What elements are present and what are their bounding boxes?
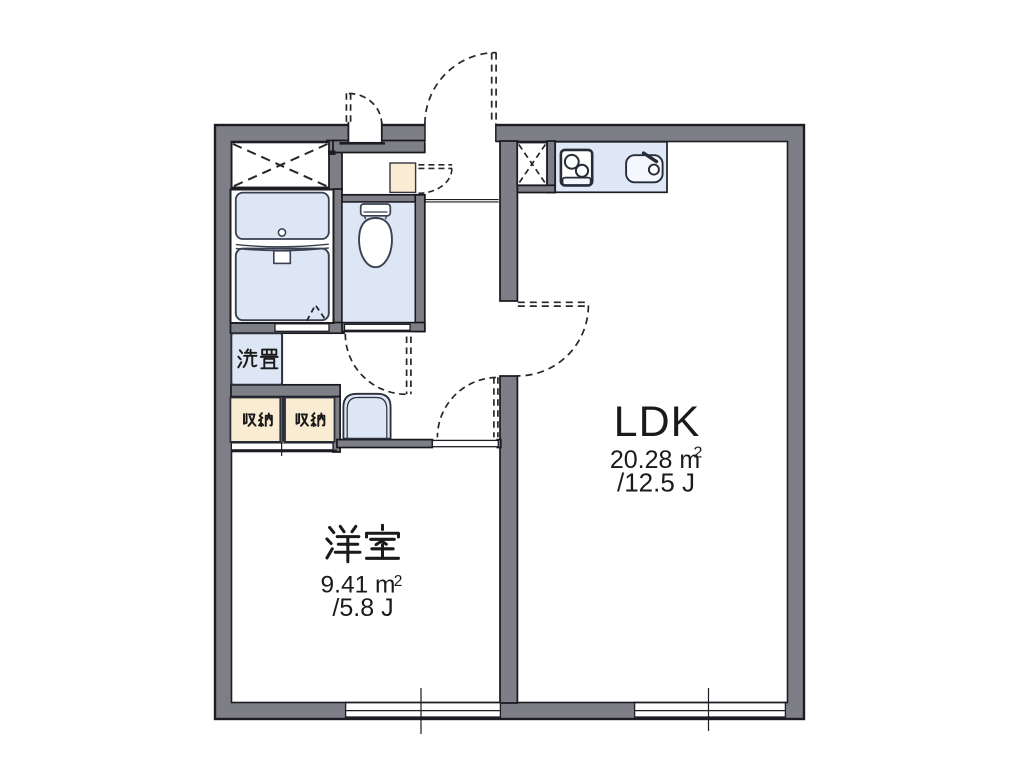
svg-text:/12.5 J: /12.5 J: [617, 468, 695, 498]
svg-text:LDK: LDK: [614, 398, 701, 446]
svg-text:2: 2: [694, 445, 703, 462]
svg-text:/5.8 J: /5.8 J: [332, 594, 393, 622]
svg-text:2: 2: [394, 573, 403, 590]
